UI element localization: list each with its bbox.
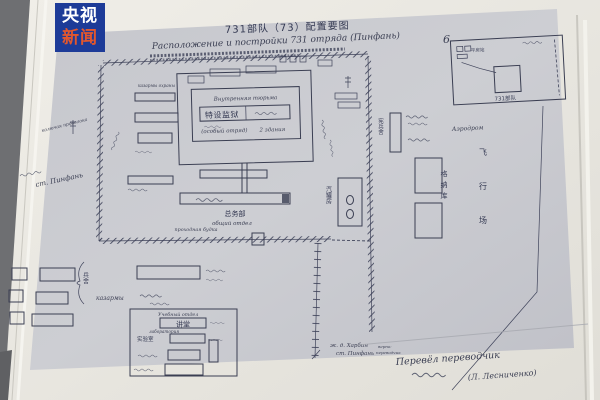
verify-label-2: переводчик [376, 350, 401, 355]
barracks-russian-label: казармы [96, 295, 124, 302]
site-plan-drawing: 731部队（73）配置要图 Расположение и постройки 7… [0, 0, 600, 400]
lecture-hall-chinese: 讲堂 [176, 320, 190, 329]
page-number: 6 [443, 33, 450, 46]
prison-note-1: (особый отряд) [201, 127, 247, 135]
boiler-chinese-label: 汽罐房 [325, 185, 332, 205]
gatehouse-label: проходная будка [175, 226, 218, 233]
prison-chinese-label: 特设监狱 [205, 109, 239, 120]
watermark-text-line2: 新闻 [62, 28, 98, 49]
building-wing [282, 194, 289, 203]
verify-label-1: верно: [378, 344, 392, 349]
hangar-chinese-label: 格纳库 [440, 169, 448, 203]
cctv-news-watermark: 央视 新闻 [55, 3, 105, 52]
general-dept-chinese: 总务部 [225, 209, 246, 218]
watermark-text-line1: 央视 [62, 6, 98, 27]
barracks-chinese-label: 兵舍 [82, 271, 89, 285]
training-title: Учебный отдел [158, 311, 198, 318]
airfield-chinese-label: 飞行场 [479, 148, 488, 250]
lab-chinese-label: 实验室 [137, 335, 154, 343]
lab-russian-label: лаборатория [149, 329, 179, 334]
mp-chinese-label: 宪兵舍 [377, 117, 384, 136]
general-dept-russian: общий отдел [212, 220, 252, 227]
railway-label-1: ж. д. Харбин [330, 342, 368, 349]
photo-of-archival-site-plan: 731部队（73）配置要图 Расположение и постройки 7… [0, 0, 600, 400]
guard-barracks-label: казармы охраны [138, 83, 175, 88]
prison-note-2: 2 здания [258, 127, 285, 134]
railway-label-2: ст. Пинфань [336, 350, 374, 357]
